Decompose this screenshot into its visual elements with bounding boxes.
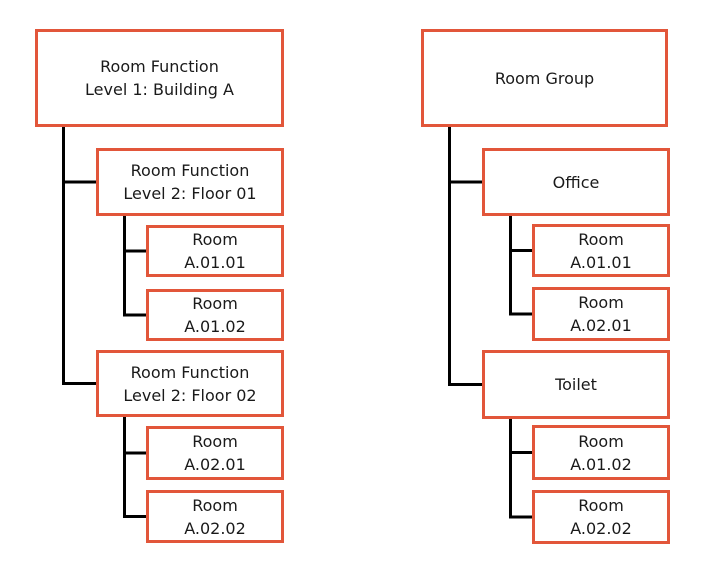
node-right-room-a-02-01: Room A.02.01 <box>532 287 670 341</box>
node-right-room-a-02-02: Room A.02.02 <box>532 490 670 544</box>
connector-right-office <box>511 216 533 314</box>
diagram-canvas: Room Function Level 1: Building A Room F… <box>0 0 728 565</box>
connector-right-trunk <box>450 127 483 385</box>
node-left-room-a-01-02: Room A.01.02 <box>146 289 284 341</box>
node-room-function-level2-floor-01: Room Function Level 2: Floor 01 <box>96 148 284 216</box>
node-label: Room A.01.02 <box>570 430 632 476</box>
node-right-room-a-01-01: Room A.01.01 <box>532 224 670 277</box>
node-left-room-a-01-01: Room A.01.01 <box>146 225 284 277</box>
node-label: Office <box>553 171 600 194</box>
node-room-function-level2-floor-02: Room Function Level 2: Floor 02 <box>96 350 284 417</box>
connector-left-trunk <box>64 127 97 384</box>
connector-left-floor01 <box>125 216 147 315</box>
node-toilet: Toilet <box>482 350 670 419</box>
node-left-room-a-02-01: Room A.02.01 <box>146 426 284 480</box>
node-label: Room A.02.01 <box>184 430 246 476</box>
connector-left-floor02 <box>125 417 147 517</box>
node-label: Room Group <box>495 67 594 90</box>
node-label: Toilet <box>555 373 597 396</box>
node-label: Room A.02.01 <box>570 291 632 337</box>
node-office: Office <box>482 148 670 216</box>
node-label: Room A.01.01 <box>184 228 246 274</box>
node-label: Room A.02.02 <box>184 494 246 540</box>
node-room-function-level1-building-a: Room Function Level 1: Building A <box>35 29 284 127</box>
connector-right-toilet <box>511 419 533 517</box>
node-label: Room A.01.02 <box>184 292 246 338</box>
node-label: Room Function Level 1: Building A <box>85 55 234 101</box>
node-label: Room Function Level 2: Floor 01 <box>123 159 256 205</box>
node-label: Room A.02.02 <box>570 494 632 540</box>
node-room-group: Room Group <box>421 29 668 127</box>
node-label: Room Function Level 2: Floor 02 <box>123 361 256 407</box>
node-left-room-a-02-02: Room A.02.02 <box>146 490 284 543</box>
node-right-room-a-01-02: Room A.01.02 <box>532 425 670 480</box>
node-label: Room A.01.01 <box>570 228 632 274</box>
